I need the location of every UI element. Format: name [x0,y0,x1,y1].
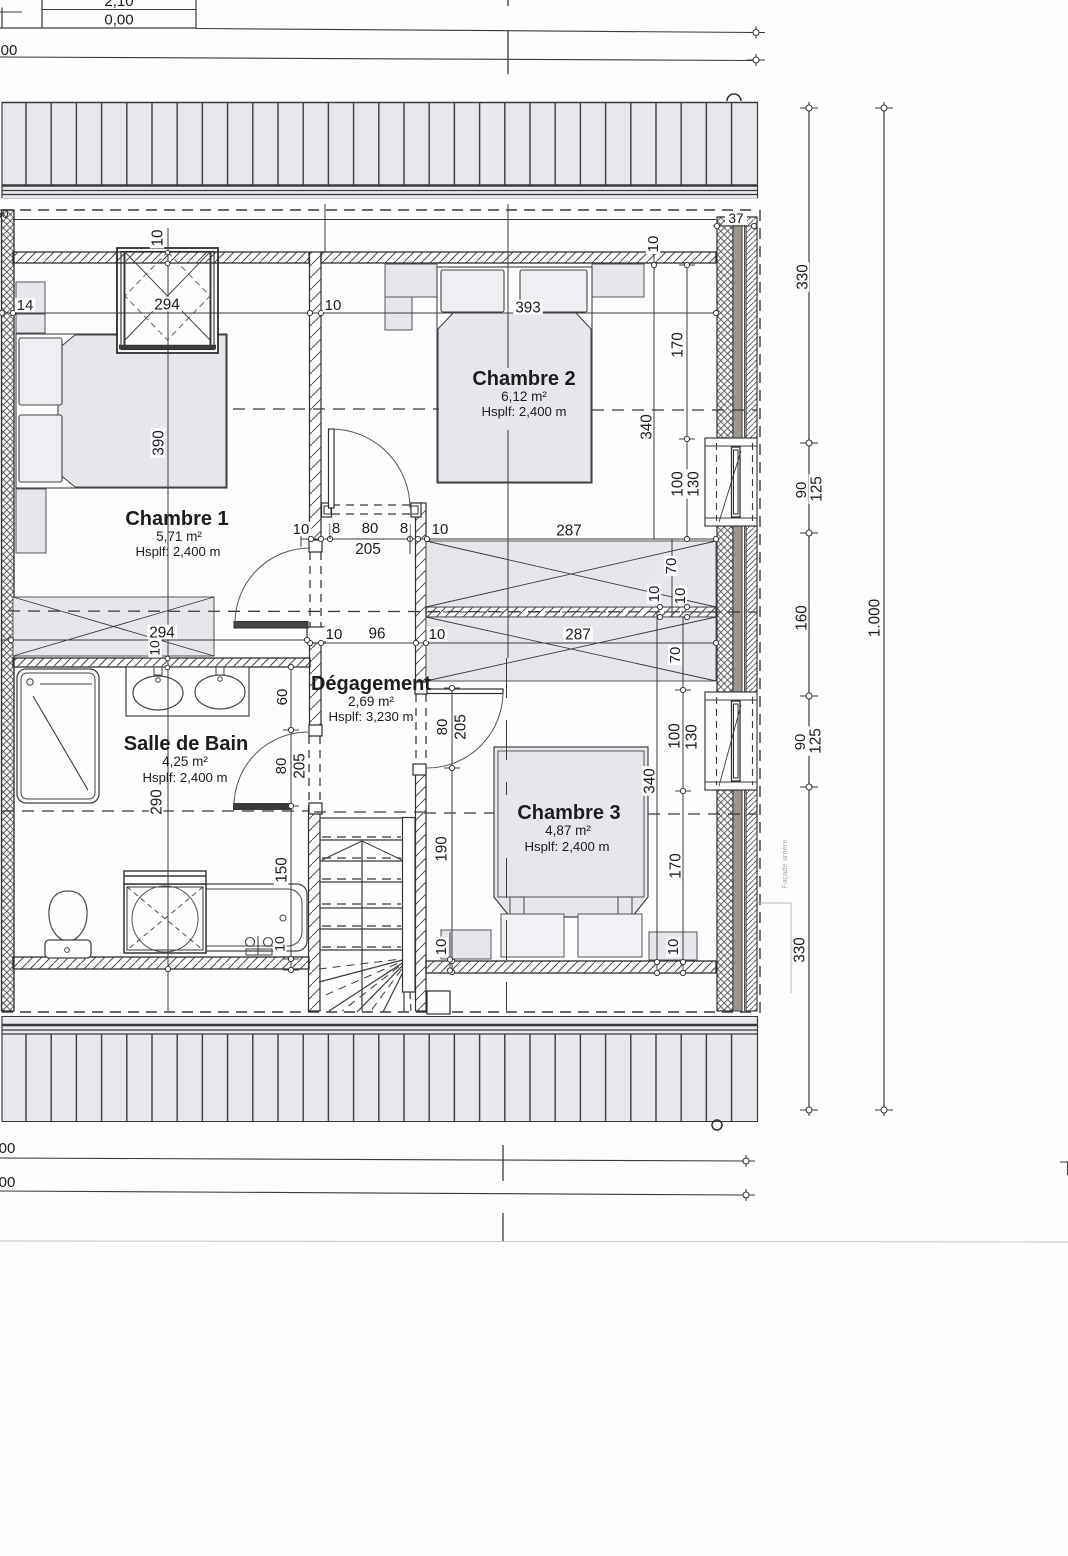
svg-text:205: 205 [291,753,308,779]
svg-text:10: 10 [272,936,288,952]
svg-text:287: 287 [556,522,582,539]
svg-text:Chambre 2: Chambre 2 [472,368,575,390]
svg-text:290: 290 [148,789,165,815]
svg-text:00: 00 [0,1140,15,1157]
svg-text:1.000: 1.000 [866,599,883,637]
svg-text:0,00: 0,00 [104,12,133,29]
svg-text:5,71 m²: 5,71 m² [156,529,202,544]
svg-text:170: 170 [667,853,684,879]
svg-text:Hsplf: 2,400 m: Hsplf: 2,400 m [142,770,227,785]
svg-text:160: 160 [793,605,810,631]
svg-text:Dégagement: Dégagement [311,673,431,695]
svg-text:00: 00 [0,1174,15,1191]
svg-text:96: 96 [368,625,385,642]
svg-text:340: 340 [638,414,655,440]
svg-text:130: 130 [685,471,702,497]
svg-text:2,69 m²: 2,69 m² [348,694,394,709]
svg-text:10: 10 [646,586,663,603]
svg-text:340: 340 [641,768,658,794]
svg-text:Chambre 1: Chambre 1 [125,508,228,530]
svg-text:8: 8 [332,520,340,537]
svg-text:205: 205 [355,541,381,558]
svg-text:14: 14 [17,297,34,314]
svg-text:10: 10 [665,939,682,956]
svg-text:10: 10 [326,626,343,643]
svg-text:8: 8 [400,520,408,537]
svg-text:130: 130 [683,724,700,750]
svg-text:330: 330 [794,264,811,290]
svg-text:10: 10 [432,521,449,538]
svg-text:10: 10 [149,229,166,246]
svg-text:60: 60 [274,689,291,706]
svg-text:287: 287 [565,626,591,643]
svg-text:10: 10 [325,297,342,314]
svg-text:10: 10 [293,521,310,538]
svg-text:Chambre 3: Chambre 3 [517,802,620,824]
svg-text:10: 10 [672,588,689,605]
svg-text:00: 00 [1,42,18,59]
svg-text:330: 330 [791,937,808,963]
svg-text:10: 10 [433,939,450,956]
svg-text:Hsplf: 2,400 m: Hsplf: 2,400 m [135,544,220,559]
svg-text:Hsplf: 2,400 m: Hsplf: 2,400 m [481,404,566,419]
svg-text:80: 80 [362,520,379,537]
svg-text:100: 100 [669,471,686,497]
svg-text:Hsplf: 2,400 m: Hsplf: 2,400 m [524,839,609,854]
svg-text:390: 390 [150,430,167,456]
svg-text:294: 294 [154,296,180,313]
svg-text:393: 393 [515,299,541,316]
svg-text:Hsplf: 3,230 m: Hsplf: 3,230 m [328,709,413,724]
svg-text:4,87 m²: 4,87 m² [545,823,591,838]
svg-text:2,10: 2,10 [104,0,133,10]
svg-text:Façade arrière: Façade arrière [780,840,789,889]
svg-text:70: 70 [663,558,680,575]
svg-text:125: 125 [808,476,825,502]
svg-text:Salle de Bain: Salle de Bain [124,733,249,755]
svg-text:50: 50 [0,209,8,221]
svg-text:37: 37 [728,211,743,226]
svg-text:205: 205 [452,714,469,740]
svg-text:100: 100 [666,723,683,749]
svg-text:10: 10 [147,640,163,656]
svg-text:150: 150 [273,857,290,883]
svg-text:190: 190 [433,836,450,862]
svg-text:6,12 m²: 6,12 m² [501,389,547,404]
svg-text:10: 10 [429,626,446,643]
svg-text:70: 70 [667,647,684,664]
svg-text:10: 10 [645,236,662,253]
svg-text:80: 80 [434,719,451,736]
svg-text:80: 80 [273,758,290,775]
svg-text:4,25 m²: 4,25 m² [162,754,208,769]
svg-text:170: 170 [669,332,686,358]
svg-text:125: 125 [807,728,824,754]
